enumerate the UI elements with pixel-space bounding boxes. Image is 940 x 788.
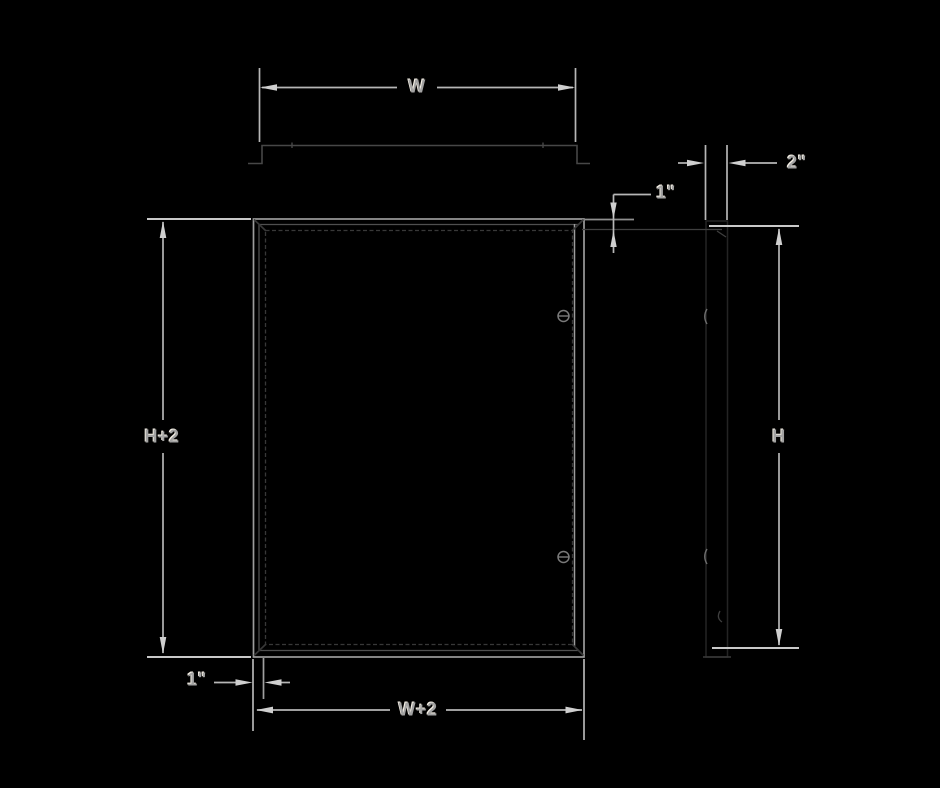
dim-flange-top [582,195,722,254]
front-view [248,143,590,658]
side-hinge-mark-bottom [718,611,722,622]
side-profile-outline [706,221,728,657]
arrowhead-down [160,637,167,654]
dim-label-width: W [408,77,426,98]
arrowhead-left [260,84,277,91]
side-hinge-mark-top [717,231,726,237]
arrowhead-up [610,231,616,248]
arrowhead-left [265,679,282,685]
dim-label-depth: 2" [787,153,807,174]
flange-outline [248,146,590,164]
arrowhead-down [776,629,783,646]
corner-bevel-top-left [254,220,266,232]
arrowhead-right [566,707,583,714]
arrowhead-up [776,228,783,245]
arrowhead-right [236,679,253,685]
dim-depth [678,145,777,220]
arrowhead-down [610,203,616,220]
corner-bevel-bottom-left [254,644,266,656]
arrowhead-left [729,160,746,166]
technical-drawing [0,0,940,788]
dim-label-height: H [772,427,786,448]
arrowhead-right [558,84,575,91]
frame-outer-rect [254,219,585,657]
arrowhead-right [687,160,704,166]
corner-bevel-bottom-right [572,644,584,656]
arrowhead-up [160,221,167,238]
side-view [703,221,731,657]
door-panel-rect [266,231,573,645]
dim-flange-bottom [214,658,290,699]
corner-bevel-top-right [572,220,584,232]
drawing-canvas: W H+2 W+2 H 1" 2" 1" [0,0,940,788]
dim-label-flange-bottom: 1" [187,670,207,691]
dim-label-height-plus-2: H+2 [144,427,179,448]
screw-cam-bottom [558,552,569,563]
dim-label-width-plus-2: W+2 [398,700,437,721]
arrowhead-left [256,707,273,714]
frame-inner-line [259,225,578,651]
dim-label-flange-top: 1" [656,183,676,204]
screw-cam-top [558,311,569,322]
